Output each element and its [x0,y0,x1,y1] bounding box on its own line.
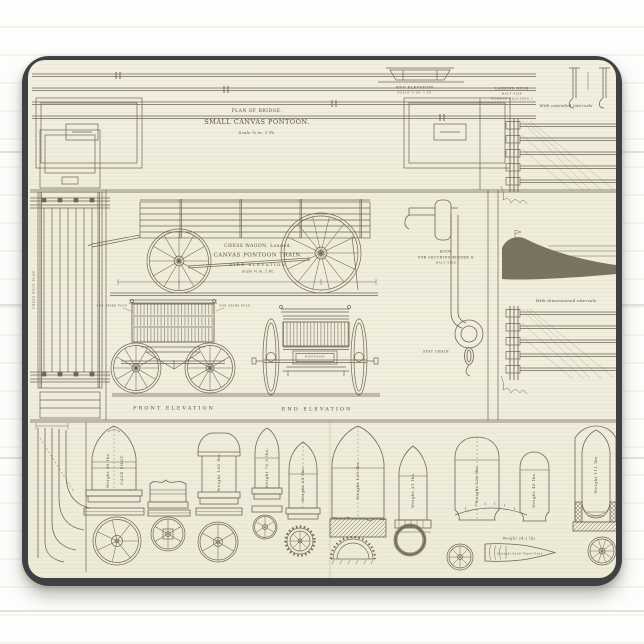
shell-weight-label: Weight 40 lbs. [532,472,536,508]
wagon-label-line1: CHESS WAGON, Loaded. [224,245,292,250]
schenkl-weight-label: Weight 24.2 lbs. [503,537,537,540]
front-elevation-label: FRONT ELEVATION [133,407,215,412]
end-elevation-mini-scale: SCALE ¾ IN. 1 FT. [397,92,432,95]
stay-chain-label: STAY CHAIN [423,350,449,353]
deck-plan-vertical-label: CHESS DECK PLAN [33,271,36,310]
spare-pole-left-label: FOR SPARE POLE [96,306,127,309]
end-elevation-mini-drawing [378,68,464,82]
shell-weight-label: Weight 100 lbs. [217,452,221,491]
mousepad: PLAN OF BRIDGE. SMALL CANVAS PONTOON. Sc… [22,56,622,586]
schenkl-name-label: Schenkl Shell Paper Fuze [497,554,543,557]
wagon-label-scale: Scale ¾ in. 1 Ft. [242,270,275,274]
end-elevation-label: END ELEVATION [282,408,353,413]
hook-label-line1: HOOK [440,250,452,253]
piles-caption-mid: With dimensioned intervals [536,299,597,303]
shell-weight-label: Weight 120 lbs. [475,464,479,503]
paper-crease [328,420,332,578]
wagon-front-elevation [111,300,256,397]
lashing-hook-drawing [569,68,610,108]
plate-title-line1: PLAN OF BRIDGE. [232,110,283,115]
shell-weight-label: Weight 25 lbs. [411,472,415,508]
plate-title-scale: Scale ¾ in. 1 Ft. [239,131,276,135]
profile-curves-drawing [36,423,90,562]
shell-weight-label: Weight 98 lbs. [106,452,110,488]
piles-caption-top: With extended intervals [539,104,592,108]
pontoon-box-label: PONTOON [305,356,325,359]
lashing-hook-number-label: NUMBER REQUIRED 2 [491,98,533,101]
shell-weight-label: Weight 25 lbs. [301,466,305,502]
shell-note-label: CASE SHOT [120,455,124,485]
lashing-hook-size-label: HALF SIZE [502,93,523,96]
lashing-hook-label: LASHING HOOK [495,87,528,90]
wagon-label-line3: SIDE ELEVATION [229,263,287,267]
hook-label-line3: HALF SIZE [436,262,457,265]
projectiles-drawing [84,426,616,537]
deck-plan-drawing [30,130,110,420]
piles-drawing-lower [501,306,616,394]
embankment-section-drawing [502,230,616,280]
spare-pole-right-label: FOR SPARE POLE [219,306,250,309]
wagon-label-line2: CANVAS PONTOON TRAIN. [213,253,302,259]
shell-weight-label: Weight 111 lbs. [594,454,598,493]
shell-weight-label: Weight 70.5 lbs. [265,448,269,489]
printed-plate: PLAN OF BRIDGE. SMALL CANVAS PONTOON. Sc… [28,60,616,578]
shell-weight-label: Weight 165 lbs. [356,460,360,499]
plate-line-art [28,60,616,578]
wagon-end-elevation [252,306,380,397]
hook-label-line2: FOR SECURING BINDER & [418,256,474,259]
plate-title-line2: SMALL CANVAS PONTOON. [204,119,310,126]
end-elevation-mini-label: END ELEVATION [396,86,434,90]
